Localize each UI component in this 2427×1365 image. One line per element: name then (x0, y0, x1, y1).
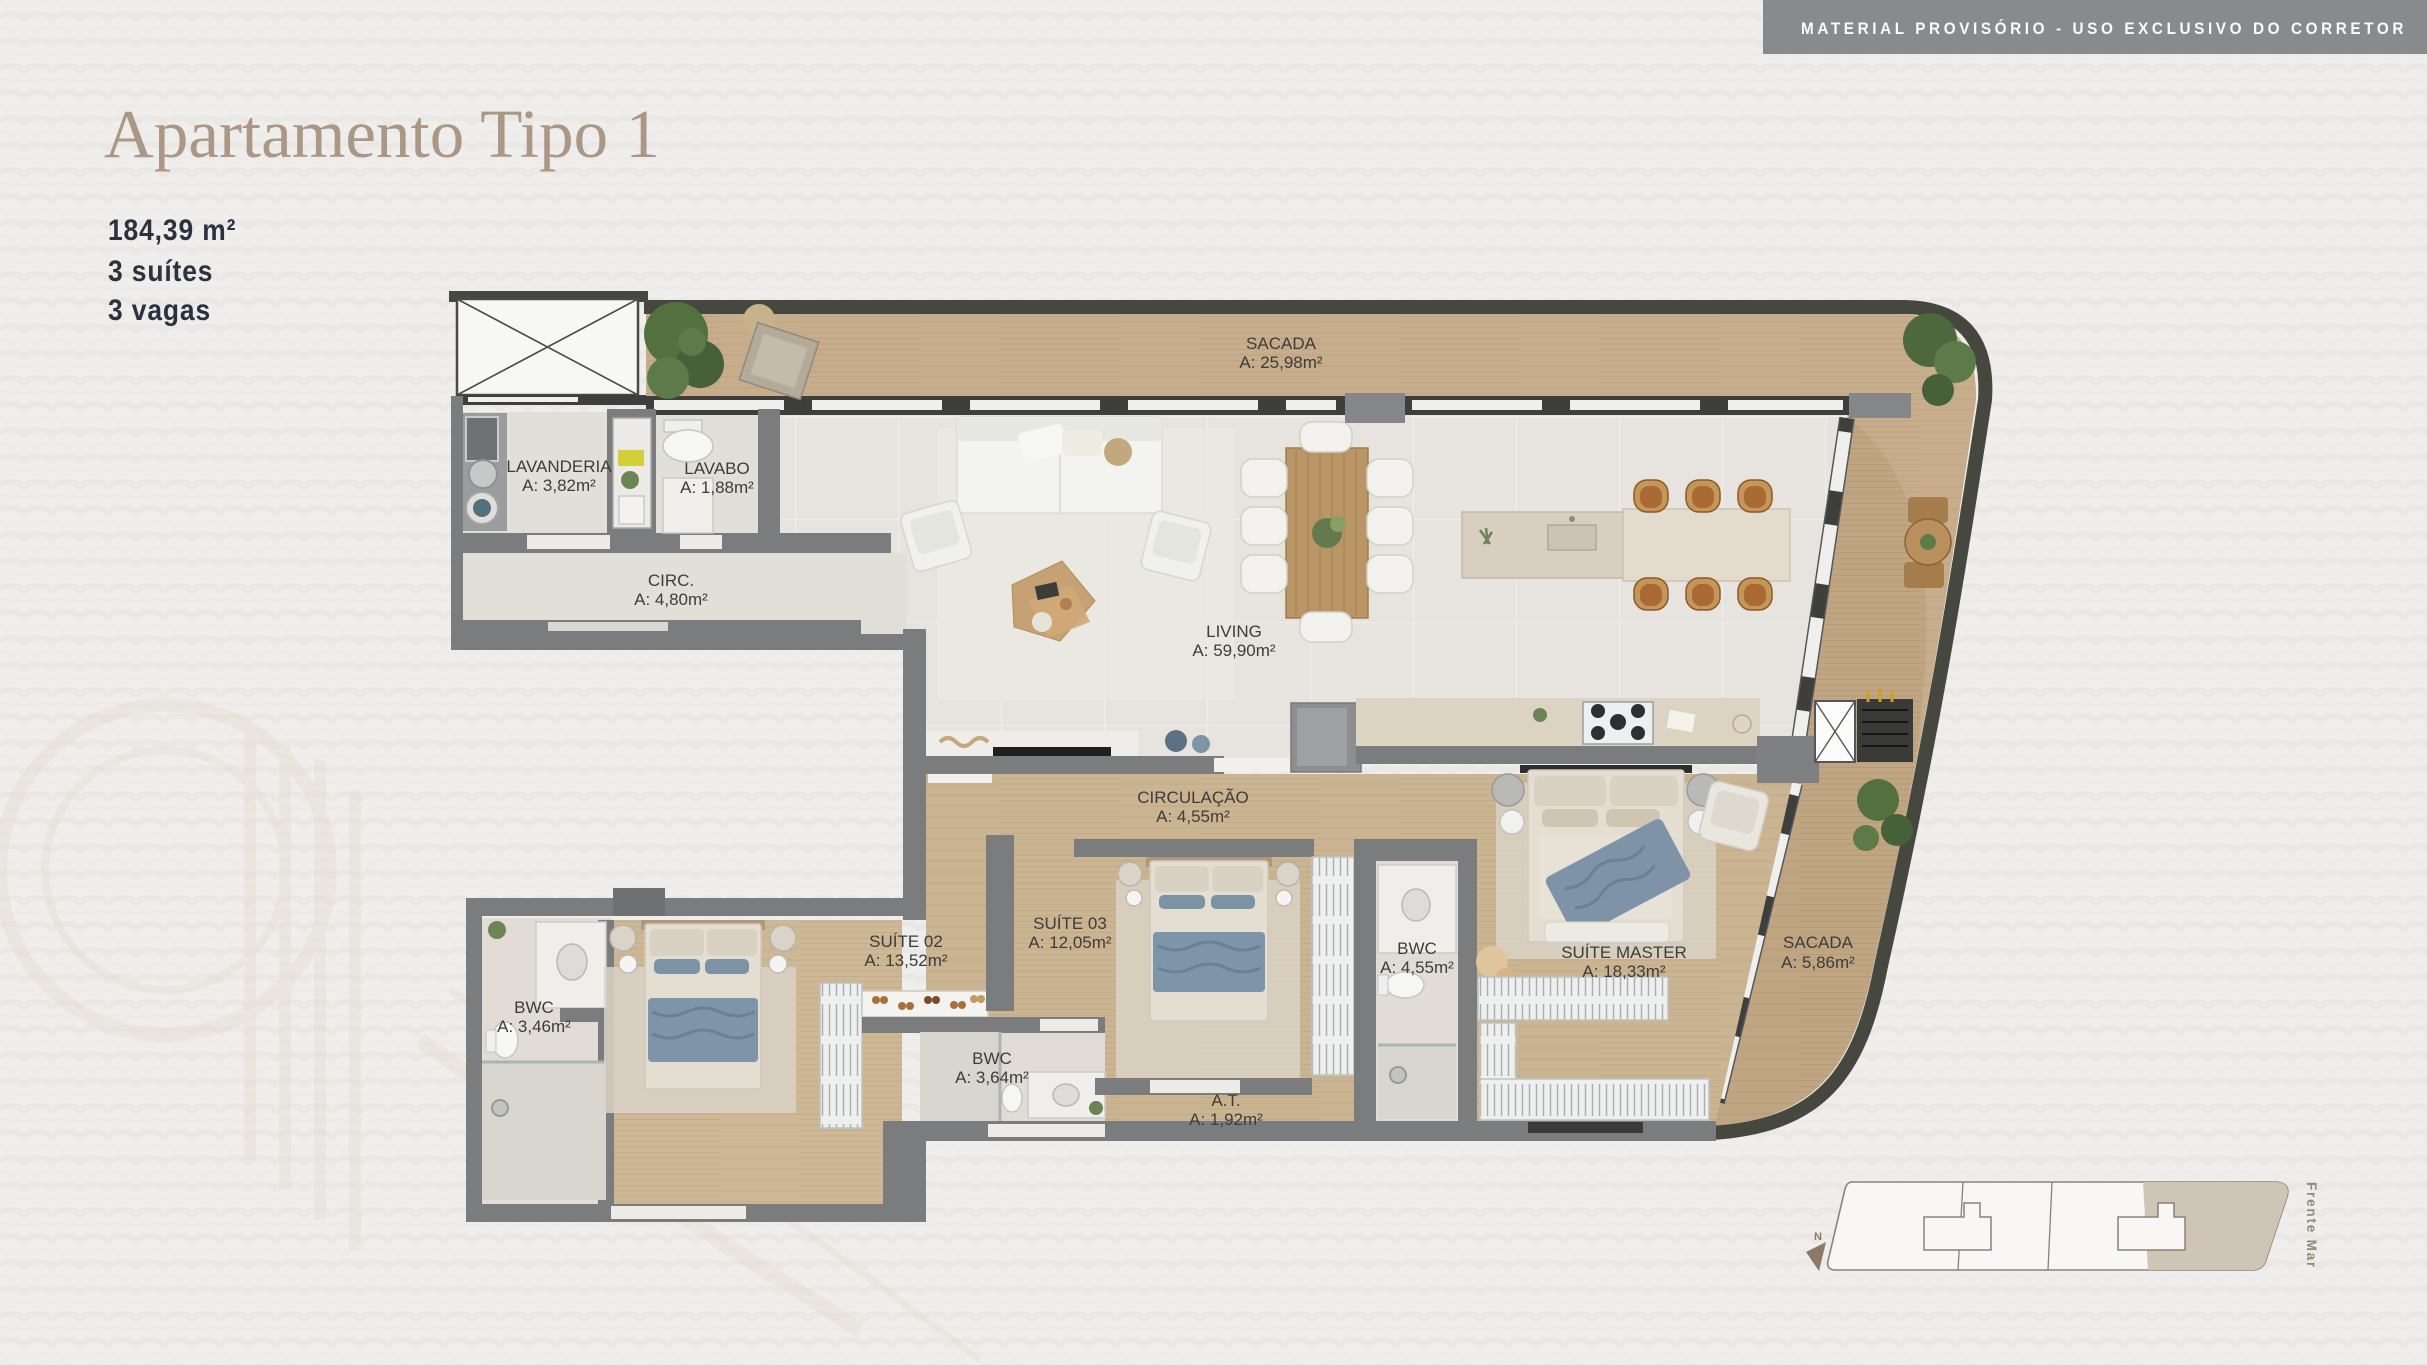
svg-text:A: 4,55m²: A: 4,55m² (1156, 807, 1230, 826)
svg-text:A: 25,98m²: A: 25,98m² (1239, 353, 1322, 372)
svg-text:A: 3,46m²: A: 3,46m² (497, 1017, 571, 1036)
svg-text:A: 1,88m²: A: 1,88m² (680, 478, 754, 497)
svg-text:A: 4,55m²: A: 4,55m² (1380, 958, 1454, 977)
svg-text:BWC: BWC (972, 1049, 1012, 1068)
svg-text:A: 18,33m²: A: 18,33m² (1582, 962, 1665, 981)
svg-text:A: 59,90m²: A: 59,90m² (1192, 641, 1275, 660)
svg-text:A: 4,80m²: A: 4,80m² (634, 590, 708, 609)
svg-text:CIRC.: CIRC. (648, 571, 694, 590)
svg-text:A.T.: A.T. (1211, 1091, 1240, 1110)
svg-text:SUÍTE MASTER: SUÍTE MASTER (1561, 943, 1687, 962)
svg-text:Frente Mar: Frente Mar (2304, 1182, 2319, 1269)
svg-text:A: 1,92m²: A: 1,92m² (1189, 1110, 1263, 1129)
svg-text:CIRCULAÇÃO: CIRCULAÇÃO (1137, 788, 1248, 807)
svg-text:LAVABO: LAVABO (684, 459, 750, 478)
svg-text:MATERIAL PROVISÓRIO - USO EXCL: MATERIAL PROVISÓRIO - USO EXCLUSIVO DO C… (1801, 19, 2407, 38)
svg-text:SUÍTE 03: SUÍTE 03 (1033, 914, 1107, 933)
svg-text:SACADA: SACADA (1246, 334, 1317, 353)
svg-text:A: 3,82m²: A: 3,82m² (522, 476, 596, 495)
svg-text:N: N (1814, 1231, 1822, 1243)
svg-text:SACADA: SACADA (1783, 933, 1854, 952)
svg-text:3 vagas: 3 vagas (108, 292, 211, 326)
svg-text:A: 3,64m²: A: 3,64m² (955, 1068, 1029, 1087)
svg-text:A: 12,05m²: A: 12,05m² (1028, 933, 1111, 952)
svg-text:184,39 m²: 184,39 m² (108, 212, 236, 246)
svg-text:SUÍTE 02: SUÍTE 02 (869, 932, 943, 951)
svg-text:Apartamento Tipo 1: Apartamento Tipo 1 (104, 96, 660, 172)
svg-text:A: 5,86m²: A: 5,86m² (1781, 953, 1855, 972)
svg-text:3 suítes: 3 suítes (108, 253, 213, 287)
svg-text:LAVANDERIA: LAVANDERIA (506, 457, 612, 476)
svg-text:BWC: BWC (514, 998, 554, 1017)
svg-text:BWC: BWC (1397, 939, 1437, 958)
svg-text:A: 13,52m²: A: 13,52m² (864, 951, 947, 970)
svg-text:LIVING: LIVING (1206, 622, 1262, 641)
